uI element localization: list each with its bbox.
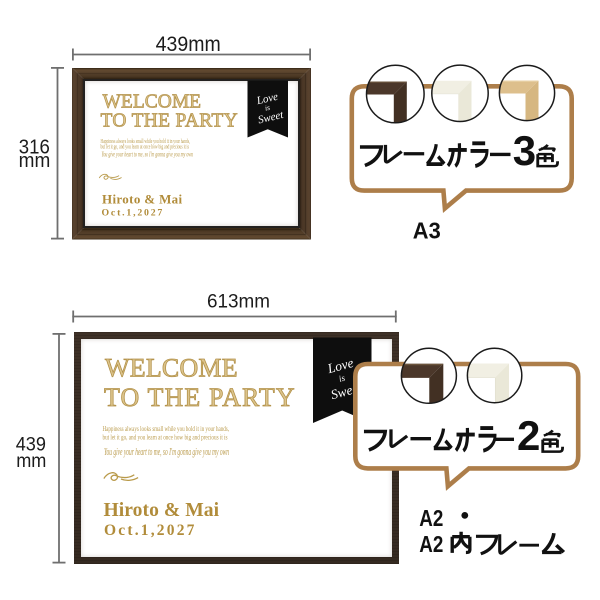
svg-text:WELCOME: WELCOME	[103, 92, 202, 113]
svg-text:Oct.1,2027: Oct.1,2027	[102, 207, 165, 218]
svg-text:WELCOME: WELCOME	[105, 353, 238, 382]
svg-text:613mm: 613mm	[207, 291, 270, 312]
svg-text:You give your heart to me, so: You give your heart to me, so I'm gonna …	[102, 150, 194, 159]
svg-text:Oct.1,2027: Oct.1,2027	[104, 522, 197, 539]
svg-text:2: 2	[517, 412, 540, 459]
svg-text:TO THE PARTY: TO THE PARTY	[101, 111, 239, 132]
svg-text:mm: mm	[19, 149, 51, 172]
svg-text:A2: A2	[419, 505, 443, 532]
svg-text:but let it go, and you learn a: but let it go, and you learn at once how…	[103, 433, 228, 442]
svg-text:TO THE PARTY: TO THE PARTY	[104, 383, 296, 412]
svg-text:mm: mm	[16, 449, 46, 471]
svg-text:Hiroto & Mai: Hiroto & Mai	[104, 500, 220, 521]
svg-text:You give your heart to me, so: You give your heart to me, so I'm gonna …	[104, 447, 229, 458]
svg-text:A3: A3	[413, 217, 441, 244]
svg-text:Hiroto & Mai: Hiroto & Mai	[102, 192, 183, 207]
svg-text:439mm: 439mm	[156, 33, 221, 56]
svg-text:3: 3	[513, 127, 536, 174]
svg-text:A2: A2	[419, 531, 443, 558]
